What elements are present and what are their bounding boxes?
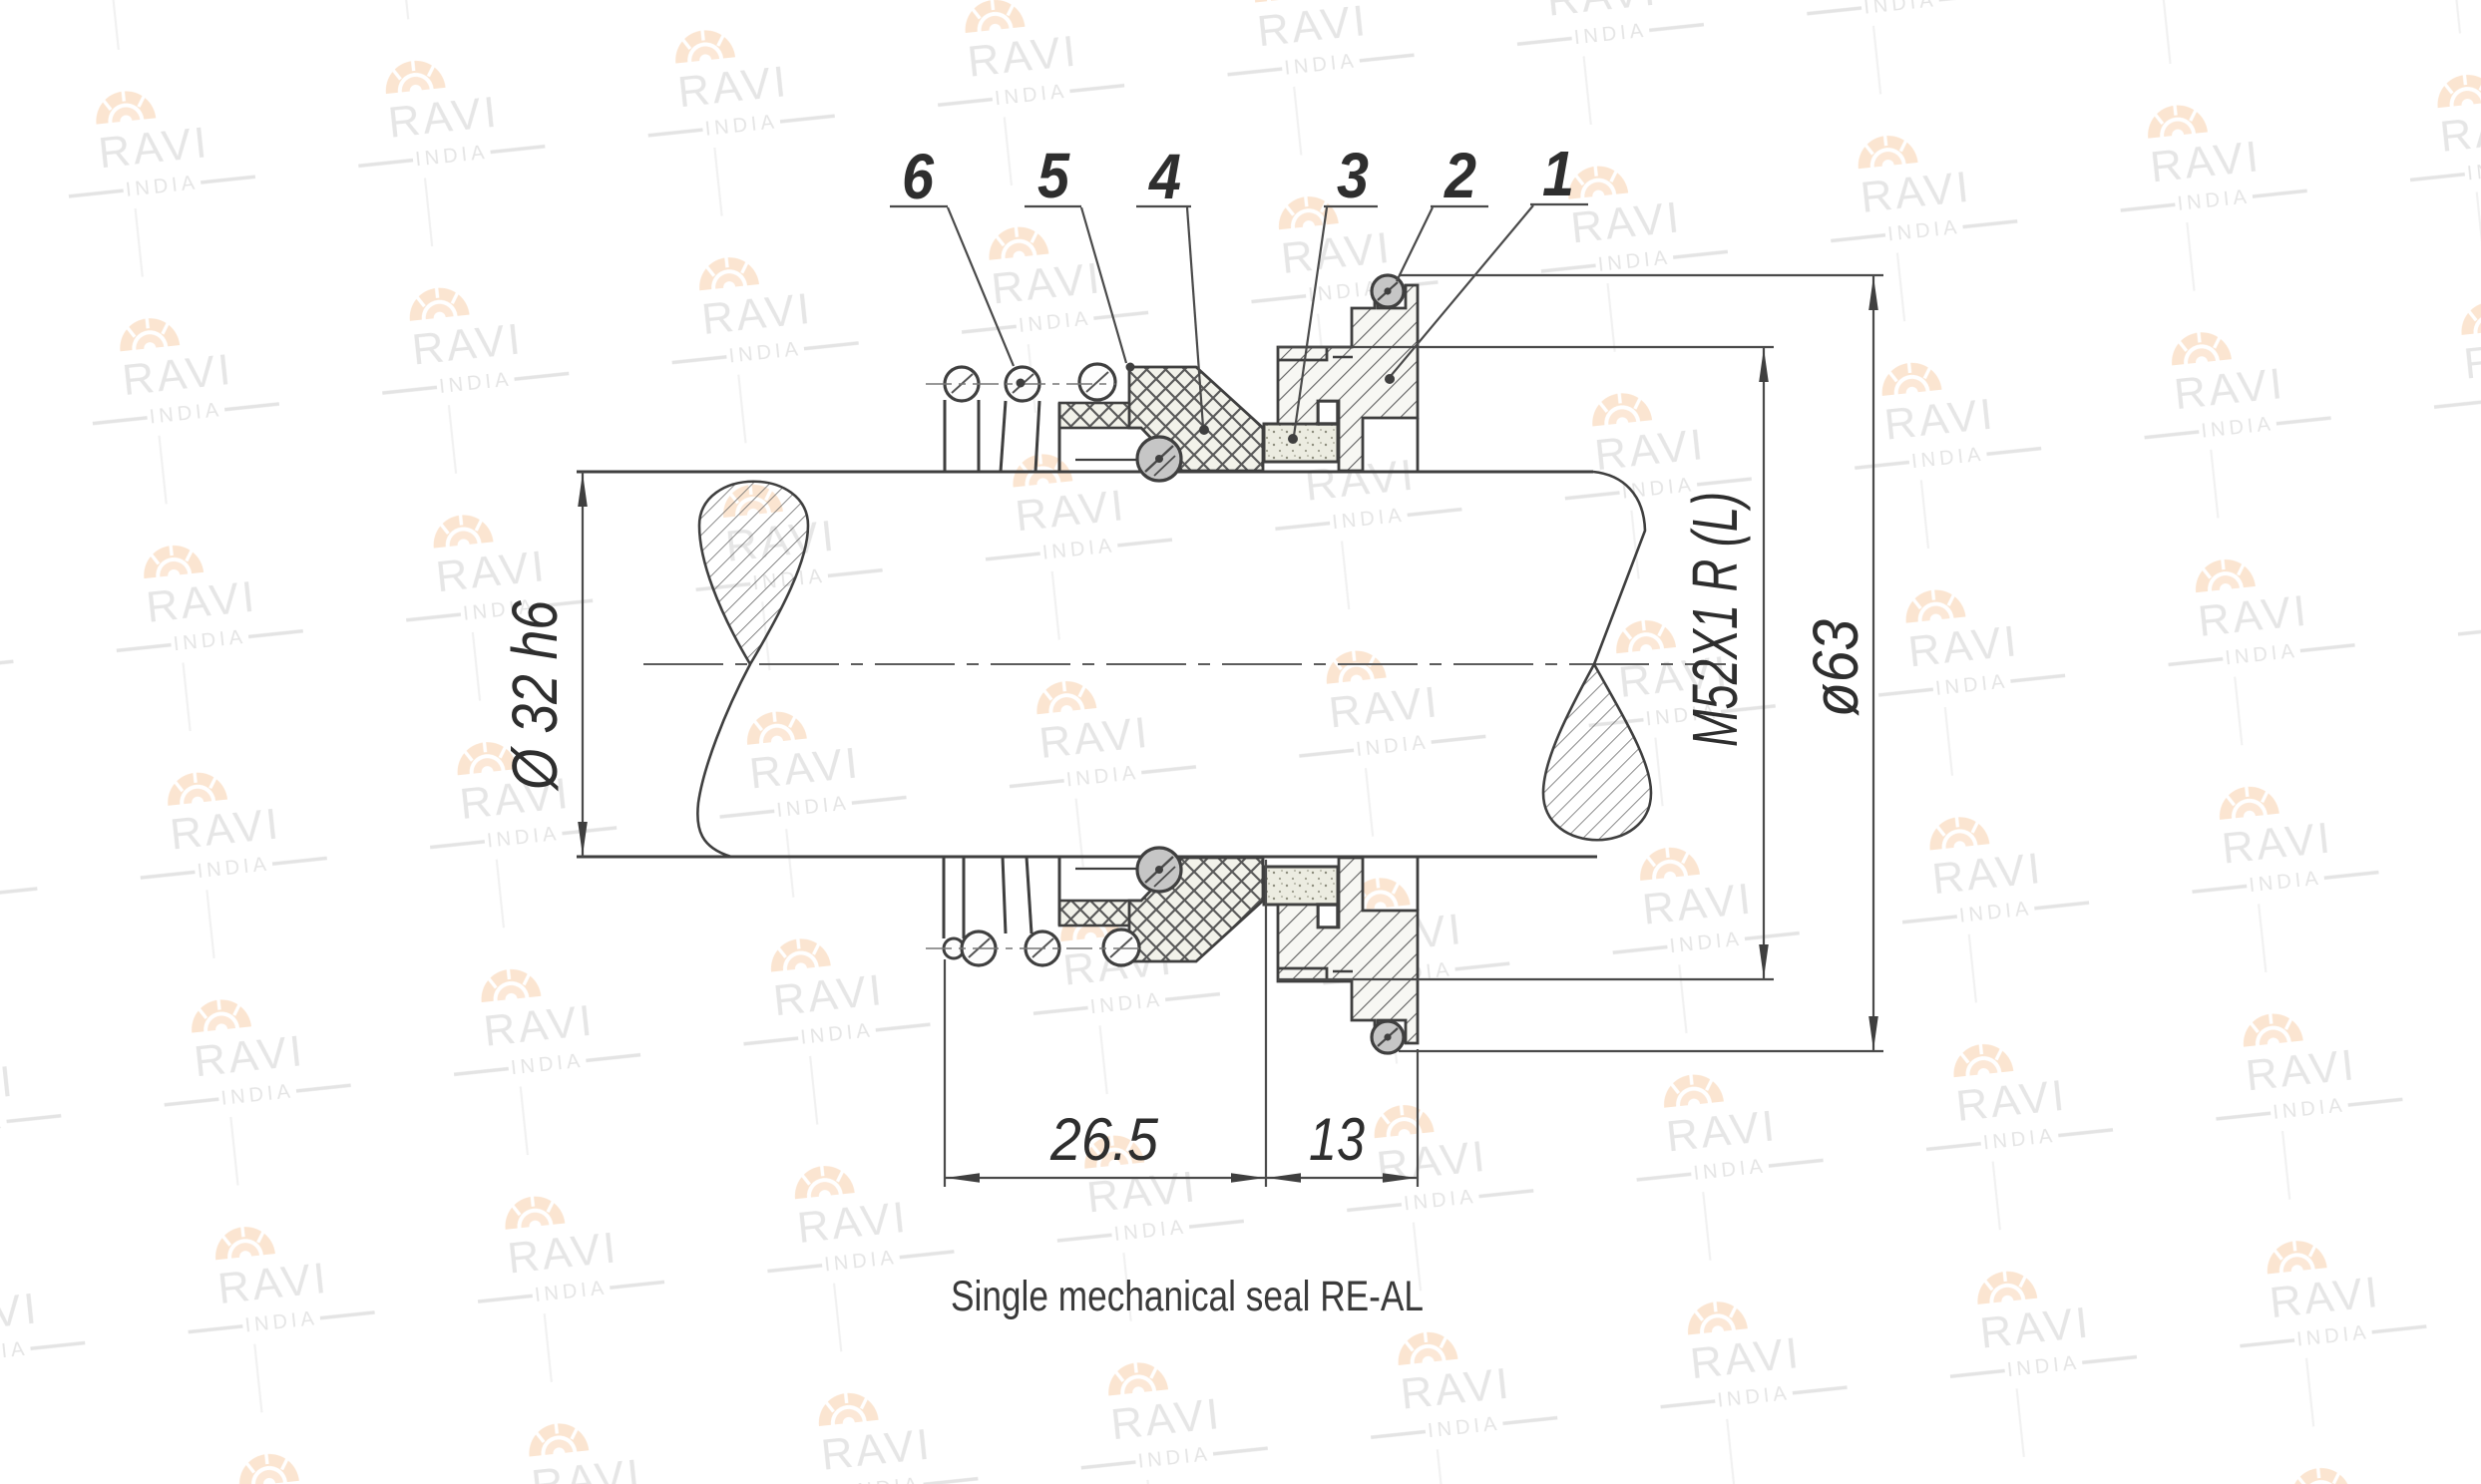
svg-text:26.5: 26.5 <box>1049 1106 1159 1173</box>
svg-text:1: 1 <box>1542 138 1574 209</box>
svg-text:ø63: ø63 <box>1800 619 1871 717</box>
svg-text:3: 3 <box>1337 140 1369 211</box>
svg-text:13: 13 <box>1309 1106 1365 1173</box>
svg-text:6: 6 <box>902 141 934 212</box>
svg-text:Ø 32 h6: Ø 32 h6 <box>499 600 571 792</box>
svg-text:4: 4 <box>1147 141 1181 212</box>
svg-text:M52X1 R (L): M52X1 R (L) <box>1679 492 1751 747</box>
svg-text:5: 5 <box>1037 140 1070 211</box>
svg-text:Single mechanical seal RE-AL: Single mechanical seal RE-AL <box>951 1273 1424 1320</box>
svg-text:2: 2 <box>1444 140 1476 211</box>
